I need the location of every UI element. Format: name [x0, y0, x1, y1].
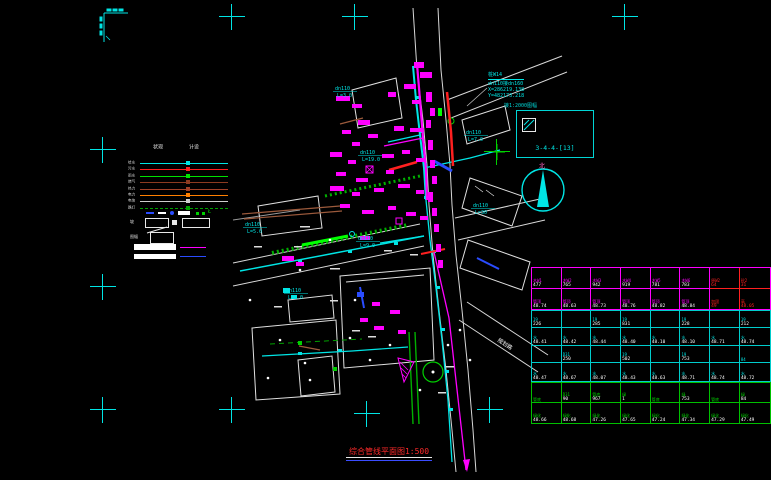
table-cell: 绿化47.26 — [591, 403, 621, 423]
table-cell: 水48.72 — [740, 363, 770, 381]
legend-rows: 给水污水雨水燃气热力电力电信路灯 — [128, 160, 238, 211]
table-cell: 19502 — [621, 346, 651, 363]
sheet-index-box[interactable]: 3-4-4-[13] — [516, 110, 594, 158]
svg-text:L=9.0: L=9.0 — [360, 243, 375, 249]
svg-text:dn110: dn110 — [358, 236, 373, 242]
svg-text:L=2.0: L=2.0 — [288, 295, 303, 301]
table-cell: 水48.10 — [680, 328, 710, 346]
table-row: D31250195021975384 — [532, 346, 770, 363]
table-cell: 管底 — [710, 383, 740, 403]
table-cell — [651, 346, 681, 363]
svg-text:dn110: dn110 — [245, 222, 260, 228]
cross-mark — [219, 4, 245, 30]
svg-text:L=5.0: L=5.0 — [247, 229, 262, 235]
node-id: 桩W14 — [488, 72, 524, 78]
svg-text:L=19.0: L=19.0 — [362, 157, 380, 163]
table-cell: 水48.40 — [621, 328, 651, 346]
table-cell: 管顶48.76 — [621, 289, 651, 309]
svg-text:dn110: dn110 — [286, 288, 301, 294]
legend-sheet-row: 图幅 A4 — [128, 232, 238, 244]
table-cell: 绿化47.65 — [621, 403, 651, 423]
annotation-rule — [488, 79, 524, 80]
table-cell — [651, 311, 681, 328]
table-cell — [591, 346, 621, 363]
survey-dots — [249, 239, 472, 392]
table-section: 木W1477木W2765木W3942木W4919木W5781木W6783原W26… — [531, 267, 771, 310]
table-cell: 水48.41 — [532, 328, 562, 346]
sheet-title-block: 综合管线平面图1:500 — [346, 447, 432, 461]
table-cell — [710, 346, 740, 363]
table-section: 管底D3190管底967绿1管底绿753管底绿84绿化48.66绿化48.68绿… — [531, 382, 771, 424]
table-cell: 水48.10 — [651, 328, 681, 346]
table-cell: 管底 — [532, 383, 562, 403]
table-cell — [562, 311, 592, 328]
cross-mark — [477, 397, 503, 423]
table-cell: 高48.05 — [740, 289, 770, 309]
table-cell: 木W1477 — [532, 268, 562, 289]
table-cell: 19831 — [621, 311, 651, 328]
table-cell: 水48.43 — [621, 363, 651, 381]
svg-text:L=7.0: L=7.0 — [468, 137, 483, 143]
table-cell: 木W6783 — [680, 268, 710, 289]
cross-mark — [90, 137, 116, 163]
legend-symbol-row: Ł — [140, 210, 236, 216]
table-cell — [532, 346, 562, 363]
table-cell: 绿753 — [680, 383, 710, 403]
table-cell: 水48.74 — [710, 363, 740, 381]
building-outlines — [252, 78, 530, 400]
table-cell: 绿化47.24 — [651, 403, 681, 423]
table-cell: 管顶48.63 — [562, 289, 592, 309]
cross-mark — [484, 139, 510, 165]
table-row: 木W1477木W2765木W3942木W4919木W5781木W6783原W26… — [532, 268, 770, 289]
svg-text:dn110: dn110 — [335, 86, 350, 92]
elevation-table: 木W1477木W2765木W3942木W4919木W5781木W6783原W26… — [531, 267, 771, 424]
table-cell: 水48.67 — [562, 363, 592, 381]
table-cell: 绿化47.34 — [680, 403, 710, 423]
table-cell: 木W4919 — [621, 268, 651, 289]
table-cell: 管底967 — [591, 383, 621, 403]
table-cell: 水48.71 — [680, 363, 710, 381]
table-cell: 19285 — [591, 311, 621, 328]
sheet-title-text: 综合管线平面图 — [349, 447, 405, 456]
table-cell: 砼231 — [740, 268, 770, 289]
table-cell: 水48.47 — [532, 363, 562, 381]
svg-text:dn110: dn110 — [473, 203, 488, 209]
table-cell: 水48.74 — [740, 328, 770, 346]
cross-mark — [354, 401, 380, 427]
title-underline-blue — [346, 460, 432, 461]
table-cell: 木W2765 — [562, 268, 592, 289]
table-cell: 水48.44 — [591, 328, 621, 346]
table-cell: 绿1 — [621, 383, 651, 403]
coord-y: Y=482173.218 — [488, 93, 524, 99]
legend-slope-row: 坡 — [140, 218, 236, 228]
table-cell: 绿化47.29 — [710, 403, 740, 423]
table-cell: 19212 — [740, 311, 770, 328]
table-cell: 原W264 — [710, 268, 740, 289]
cross-mark — [90, 397, 116, 423]
road-name-label: 规划路 — [496, 336, 515, 352]
table-cell: 绿化48.66 — [532, 403, 562, 423]
flow-arrow — [463, 459, 470, 472]
table-cell: 管顶48.73 — [591, 289, 621, 309]
cross-mark — [219, 397, 245, 423]
table-cell: 19753 — [680, 346, 710, 363]
table-cell: 木W3942 — [591, 268, 621, 289]
sheet-scale: 1:500 — [405, 447, 429, 456]
legend-col-design: 设计 — [188, 144, 198, 149]
table-row: 管底D3190管底967绿1管底绿753管底绿84 — [532, 383, 770, 403]
title-underline-white — [346, 457, 432, 458]
table-cell: 绿化47.49 — [740, 403, 770, 423]
hatch-swatch — [522, 118, 536, 132]
table-cell: 19228 — [680, 311, 710, 328]
table-cell: 管顶48.82 — [651, 289, 681, 309]
cross-mark — [90, 274, 116, 300]
table-cell: 绿84 — [740, 383, 770, 403]
table-cell: 管顶48.84 — [680, 289, 710, 309]
legend-col-existing: 现状 — [152, 144, 162, 149]
table-row: 水48.47水48.67水48.07水48.43水48.63水48.71水48.… — [532, 363, 770, 381]
table-cell: 水48.71 — [710, 328, 740, 346]
table-cell: 管顶48.74 — [532, 289, 562, 309]
table-section: 1922619285198311922819212水48.41水48.42水48… — [531, 310, 771, 382]
sheet-corner-mark — [100, 9, 128, 42]
table-cell: 84 — [740, 346, 770, 363]
table-cell: D3190 — [562, 383, 592, 403]
table-cell: 加固49 — [710, 289, 740, 309]
table-cell: D31250 — [562, 346, 592, 363]
table-cell: 水48.42 — [562, 328, 592, 346]
table-cell: 水48.07 — [591, 363, 621, 381]
table-cell: 管底 — [651, 383, 681, 403]
table-row: 绿化48.66绿化48.68绿化47.26绿化47.65绿化47.24绿化47.… — [532, 403, 770, 423]
table-row: 管顶48.74管顶48.63管顶48.73管顶48.76管顶48.82管顶48.… — [532, 289, 770, 309]
svg-text:L=3.0: L=3.0 — [337, 93, 352, 99]
coordinate-annotation: 桩W14 dn110接dn160 X=286219.138 Y=482173.2… — [488, 72, 524, 99]
north-arrow: 北 — [522, 162, 564, 211]
table-cell: 绿化48.68 — [562, 403, 592, 423]
table-cell — [710, 311, 740, 328]
table-cell: 木W5781 — [651, 268, 681, 289]
index-box-title: 接1:2000图幅 — [504, 102, 537, 109]
cross-mark — [612, 4, 638, 30]
svg-text:dn110: dn110 — [466, 130, 481, 136]
svg-text:L=30: L=30 — [475, 210, 487, 216]
sheet-index-code: 3-4-4-[13] — [517, 144, 593, 152]
svg-text:dn110: dn110 — [360, 150, 375, 156]
table-row: 1922619285198311922819212 — [532, 311, 770, 328]
svg-text:北: 北 — [539, 162, 545, 170]
table-cell: 水48.63 — [651, 363, 681, 381]
table-row: 水48.41水48.42水48.44水48.40水48.10水48.10水48.… — [532, 328, 770, 346]
cross-mark — [342, 4, 368, 30]
cad-viewport[interactable]: dn110L=3.0 dn110L=19.0 dn110L=5.0 dn110L… — [0, 0, 771, 480]
table-cell: 19226 — [532, 311, 562, 328]
